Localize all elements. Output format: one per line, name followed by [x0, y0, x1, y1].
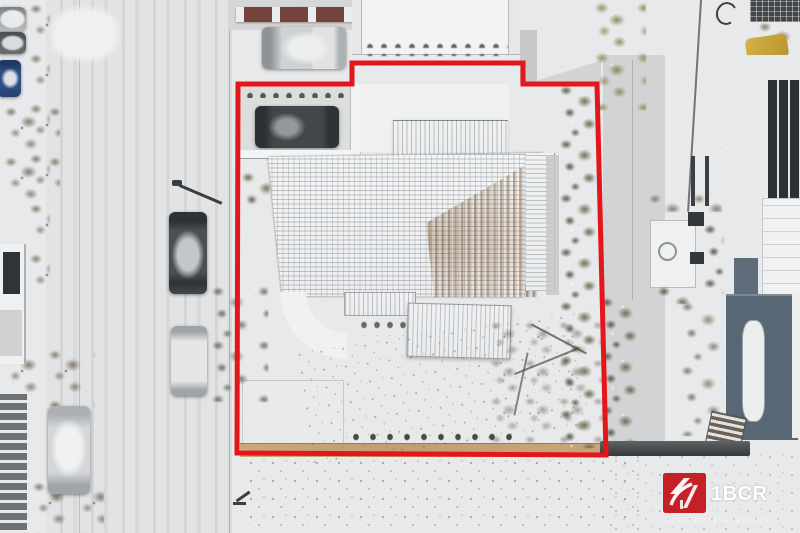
yard-conifer-left	[208, 284, 268, 402]
tree-top-left	[0, 103, 60, 201]
left-building-dark-roof	[3, 252, 20, 294]
roof-extension	[344, 292, 416, 316]
counter-circle	[658, 242, 677, 261]
neighbor-garage-wall	[520, 30, 537, 84]
top-courtyard-bush-row	[362, 38, 508, 56]
stairwell-curve	[742, 320, 765, 422]
left-fence-slats	[0, 394, 27, 533]
left-building-gray	[0, 310, 22, 356]
road-curb-right	[229, 0, 230, 533]
terrace-bush-2	[654, 284, 702, 304]
logo-wordmark: 1BCR	[711, 483, 767, 506]
parking-shrub-row	[242, 87, 348, 99]
logo-tagline-word-1: REAL	[665, 518, 690, 525]
dark-wall-strip	[600, 441, 750, 456]
neighbor-windows	[768, 80, 800, 198]
top-fence-maroon	[236, 7, 352, 22]
top-courtyard-wall-left	[352, 0, 362, 62]
terrace-planter	[644, 190, 722, 212]
neighbor-roof-edge	[792, 294, 800, 438]
logo-tagline: REAL ESTATE GROUP	[665, 518, 771, 525]
aerial-photo: 1BCR REAL ESTATE GROUP	[0, 0, 800, 533]
tree-right-top	[590, 0, 646, 110]
bush-beside-house	[238, 170, 270, 204]
logo-tagline-word-3: GROUP	[736, 518, 771, 525]
garden-shrubs	[356, 316, 408, 336]
parked-car-gray	[169, 212, 207, 294]
parked-car-white	[171, 326, 207, 396]
ground-mark-2	[233, 502, 246, 505]
hedge-right-outside	[597, 295, 645, 445]
logo: 1BCR REAL ESTATE GROUP	[663, 473, 775, 529]
parked-car-snowy-2	[0, 32, 26, 54]
logo-icon	[663, 473, 706, 513]
parked-car-silver-top	[262, 27, 346, 69]
swept-snow-patch	[52, 8, 118, 60]
parked-car-dark	[255, 106, 339, 148]
parked-car-blue	[0, 60, 21, 97]
parked-car-silver	[48, 406, 90, 494]
logo-tagline-word-2: ESTATE	[695, 518, 731, 525]
main-house-roof	[266, 151, 546, 299]
footprints-bottom	[245, 458, 645, 530]
terrace-bush-1	[700, 222, 724, 294]
parked-car-snowy-1	[0, 7, 26, 31]
